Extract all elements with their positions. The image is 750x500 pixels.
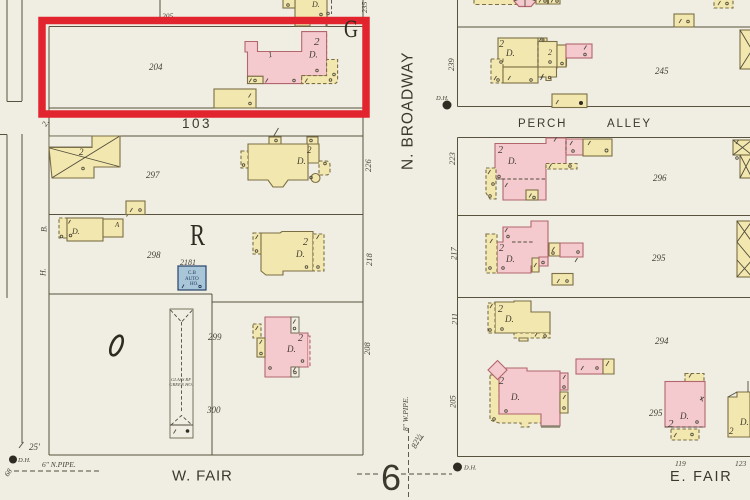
svg-text:2: 2 — [314, 36, 320, 48]
svg-text:208: 208 — [362, 342, 372, 356]
svg-text:123: 123 — [735, 459, 747, 468]
svg-text:223: 223 — [447, 152, 457, 165]
svg-text:C.B: C.B — [188, 271, 197, 276]
svg-text:299: 299 — [208, 332, 222, 342]
svg-text:D.: D. — [507, 156, 517, 166]
svg-text:W. FAIR: W. FAIR — [172, 468, 233, 485]
svg-text:2: 2 — [303, 237, 308, 248]
svg-text:ALLEY: ALLEY — [607, 118, 652, 130]
svg-text:2: 2 — [668, 418, 674, 430]
svg-text:D.: D. — [71, 227, 80, 236]
svg-text:298: 298 — [147, 250, 161, 260]
svg-text:D.: D. — [510, 392, 520, 402]
svg-text:2: 2 — [548, 48, 552, 57]
svg-text:119: 119 — [675, 459, 686, 468]
svg-text:2: 2 — [498, 304, 503, 315]
svg-text:297: 297 — [146, 170, 160, 180]
svg-text:PERCH: PERCH — [518, 118, 567, 130]
svg-text:GREEN HO.: GREEN HO. — [169, 382, 193, 387]
svg-text:2: 2 — [298, 333, 303, 344]
svg-text:300: 300 — [206, 405, 221, 415]
svg-text:N. BROADWAY: N. BROADWAY — [400, 52, 417, 170]
svg-text:D.: D. — [308, 50, 318, 60]
svg-text:D.: D. — [505, 254, 515, 264]
svg-text:295: 295 — [649, 408, 663, 418]
svg-text:25': 25' — [29, 442, 41, 452]
svg-text:A: A — [114, 221, 120, 229]
svg-text:E. FAIR: E. FAIR — [670, 469, 733, 485]
svg-text:HO.: HO. — [190, 282, 198, 287]
svg-text:294: 294 — [655, 336, 669, 346]
svg-text:6" N.PIPE.: 6" N.PIPE. — [42, 460, 76, 469]
svg-text:2: 2 — [729, 426, 734, 436]
svg-text:D.H.: D.H. — [463, 465, 477, 472]
svg-text:205: 205 — [448, 395, 458, 408]
svg-text:2: 2 — [307, 145, 312, 155]
svg-text:211: 211 — [450, 313, 460, 325]
svg-text:D.: D. — [679, 411, 689, 421]
svg-text:2181: 2181 — [180, 258, 196, 267]
svg-text:D.H.: D.H. — [17, 457, 31, 464]
svg-text:D.: D. — [739, 417, 749, 427]
svg-text:D.: D. — [311, 0, 320, 9]
svg-text:D.H.: D.H. — [435, 95, 449, 102]
svg-text:204: 204 — [149, 62, 163, 72]
svg-text:D.: D. — [286, 344, 296, 354]
svg-text:2: 2 — [499, 243, 504, 254]
svg-text:218: 218 — [364, 253, 374, 267]
svg-text:296: 296 — [653, 173, 667, 183]
svg-text:103: 103 — [182, 116, 212, 131]
svg-text:2: 2 — [499, 376, 504, 387]
svg-text:8" W.PIPE.: 8" W.PIPE. — [401, 397, 410, 431]
svg-text:2: 2 — [499, 39, 504, 50]
svg-text:2: 2 — [498, 145, 503, 156]
svg-text:D.: D. — [296, 156, 306, 166]
svg-text:R: R — [190, 217, 205, 252]
svg-text:D.: D. — [295, 249, 305, 259]
svg-text:D.: D. — [504, 314, 514, 324]
svg-text:235: 235 — [360, 2, 369, 14]
svg-text:6: 6 — [381, 457, 401, 498]
svg-text:245: 245 — [655, 66, 669, 76]
svg-text:B.: B. — [40, 225, 49, 232]
svg-text:217: 217 — [449, 247, 459, 261]
svg-text:295: 295 — [652, 253, 666, 263]
svg-text:D.: D. — [505, 48, 515, 58]
svg-text:2: 2 — [79, 147, 84, 157]
svg-text:H.: H. — [39, 268, 48, 277]
svg-text:G: G — [344, 16, 358, 43]
svg-text:226: 226 — [363, 159, 373, 173]
svg-text:239: 239 — [446, 58, 456, 72]
